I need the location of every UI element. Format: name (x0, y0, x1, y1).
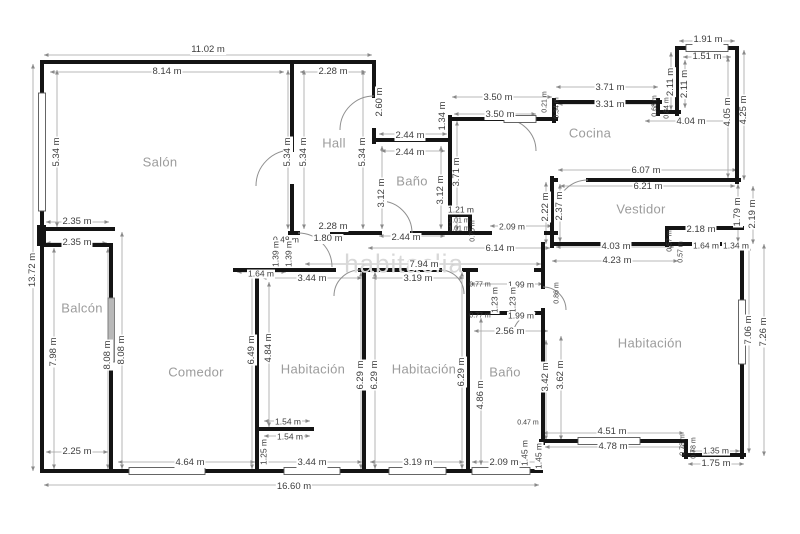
dim-label: 1.75 m (700, 459, 731, 469)
dim-label: 1.51 m (691, 52, 722, 62)
dim-label: 11.02 m (190, 45, 226, 55)
dim-label: 4.05 m (723, 96, 733, 127)
dim-label: 1.21 m (447, 206, 475, 215)
dim-label: 2.18 m (685, 225, 716, 235)
dim-label: 0.57 m (677, 241, 684, 262)
dim-label: 2.19 m (748, 198, 758, 229)
dim-label: 1.34 m (722, 242, 750, 251)
dim-label: 4.64 m (174, 458, 205, 468)
dim-label: 16.60 m (276, 482, 312, 492)
room-label-balcon: Balcón (61, 301, 103, 316)
dim-label: 3.50 m (482, 93, 513, 103)
room-label-salon: Salón (143, 155, 178, 170)
dim-label: 2.44 m (390, 233, 421, 243)
room-label-cocina: Cocina (569, 126, 611, 141)
dim-label: 1.79 m (733, 196, 743, 227)
dim-label: 4.23 m (601, 256, 632, 266)
dim-label: 6.49 m (247, 334, 257, 365)
room-label-banyo-bottom: Baño (489, 365, 521, 380)
dim-label: 2.09 m (498, 223, 526, 232)
dim-label: 2.35 m (61, 217, 92, 227)
dim-label: 3.19 m (402, 458, 433, 468)
dim-label: 3.71 m (452, 156, 462, 187)
dim-label: 1.35 m (702, 447, 730, 456)
dim-label: 6.29 m (370, 359, 380, 390)
dim-label: 5.34 m (358, 136, 368, 167)
dim-label: 6.14 m (484, 244, 515, 254)
dim-label: 0.68 m (651, 95, 658, 116)
dim-label: 2.60 m (375, 86, 385, 117)
dim-label: 5.34 m (283, 136, 293, 167)
dim-label: 1.80 m (312, 234, 343, 244)
dim-label: 0.78 m (690, 437, 697, 458)
dim-label: 1.25 m (260, 438, 269, 466)
dim-label: 7.26 m (759, 316, 769, 347)
dim-label: 8.08 m (103, 339, 113, 370)
room-label-hall: Hall (322, 136, 346, 151)
dim-label: 0.86 m (553, 282, 560, 303)
dim-label: 4.04 m (675, 117, 706, 127)
dim-label: 4.25 m (739, 94, 749, 125)
dim-label: 6.21 m (632, 182, 663, 192)
dim-label: 1.23 m (491, 286, 500, 314)
dim-label: 2.56 m (494, 327, 525, 337)
dim-label: 2.25 m (61, 447, 92, 457)
dim-label: 7.98 m (49, 336, 59, 367)
dim-label: 6.29 m (356, 359, 366, 390)
dim-label: 3.71 m (594, 83, 625, 93)
dim-label: 7.94 m (408, 260, 439, 270)
dim-label: 4.84 m (264, 332, 274, 363)
room-label-habitacion-2: Habitación (392, 362, 456, 377)
dim-label: 3.50 m (484, 110, 515, 120)
dim-label: 2.28 m (317, 67, 348, 77)
dim-label: 1.99 m (507, 312, 535, 321)
dim-label: 0.77 m (469, 312, 490, 319)
dim-label: 2.44 m (394, 148, 425, 158)
dim-label: 2.44 m (394, 131, 425, 141)
dim-label: 0.78 m (679, 434, 686, 455)
dim-label: 4.86 m (476, 379, 486, 410)
dim-label: 7.06 m (744, 314, 754, 345)
dim-label: 3.42 m (541, 361, 551, 392)
dim-label: 1.45 m (535, 442, 544, 470)
dim-label: 0.34 m (553, 97, 560, 118)
dim-label: 1.39 m (272, 240, 281, 268)
room-label-vestidor: Vestidor (616, 202, 665, 217)
dim-label: 2.35 m (61, 238, 92, 248)
room-label-banyo-top: Baño (396, 174, 428, 189)
dim-label: 3.12 m (436, 174, 446, 205)
dim-label: 1.45 m (521, 439, 530, 467)
dim-label: 1.54 m (276, 433, 304, 442)
dim-label: 4.03 m (600, 242, 631, 252)
dim-label: 6.07 m (630, 166, 661, 176)
dim-label: 3.19 m (402, 274, 433, 284)
dim-label: 0.21 m (541, 91, 548, 112)
dim-label: 4.78 m (597, 442, 628, 452)
dim-label: 1.54 m (274, 418, 302, 427)
dim-label: 1.64 m (692, 242, 720, 251)
dim-label: 0.57 m (666, 230, 673, 251)
dim-label: 1.39 m (285, 240, 294, 268)
dim-label: 1.34 m (438, 100, 448, 131)
dim-label: 8.14 m (151, 67, 182, 77)
room-label-comedor: Comedor (168, 365, 224, 380)
dim-label: 13.72 m (28, 252, 38, 288)
floorplan: habitaclia Salón Hall Baño Cocina Vestid… (0, 0, 800, 534)
dim-label: 1.01 m (448, 225, 469, 232)
dim-label: 0.47 m (517, 419, 538, 426)
dim-label: 5.34 m (299, 136, 309, 167)
dim-label: 3.62 m (556, 359, 566, 390)
dim-label: 4.51 m (596, 427, 627, 437)
dim-label: 8.08 m (117, 334, 127, 365)
dim-label: 6.29 m (457, 356, 467, 387)
dim-label: 3.44 m (296, 458, 327, 468)
dim-label: 0.77 m (469, 281, 490, 288)
dim-label: 1.64 m (247, 270, 275, 279)
dim-label: 2.22 m (541, 191, 551, 222)
dim-label: 0.84 m (663, 97, 670, 118)
dim-label: 1.01 m (448, 217, 469, 224)
dim-label: 2.09 m (488, 458, 519, 468)
dim-label: 5.34 m (52, 136, 62, 167)
dim-label: 2.11 m (680, 69, 690, 99)
room-label-habitacion-3: Habitación (618, 336, 682, 351)
dim-label: 0.75 m (469, 220, 476, 241)
dim-label: 2.37 m (555, 190, 565, 221)
dim-label: 2.11 m (666, 67, 676, 97)
dim-label: 3.44 m (296, 274, 327, 284)
dim-label: 3.31 m (594, 100, 625, 110)
room-label-habitacion-1: Habitación (281, 362, 345, 377)
dim-label: 3.12 m (377, 177, 387, 208)
dim-label: 1.91 m (692, 35, 723, 45)
dim-label: 2.28 m (317, 222, 348, 232)
